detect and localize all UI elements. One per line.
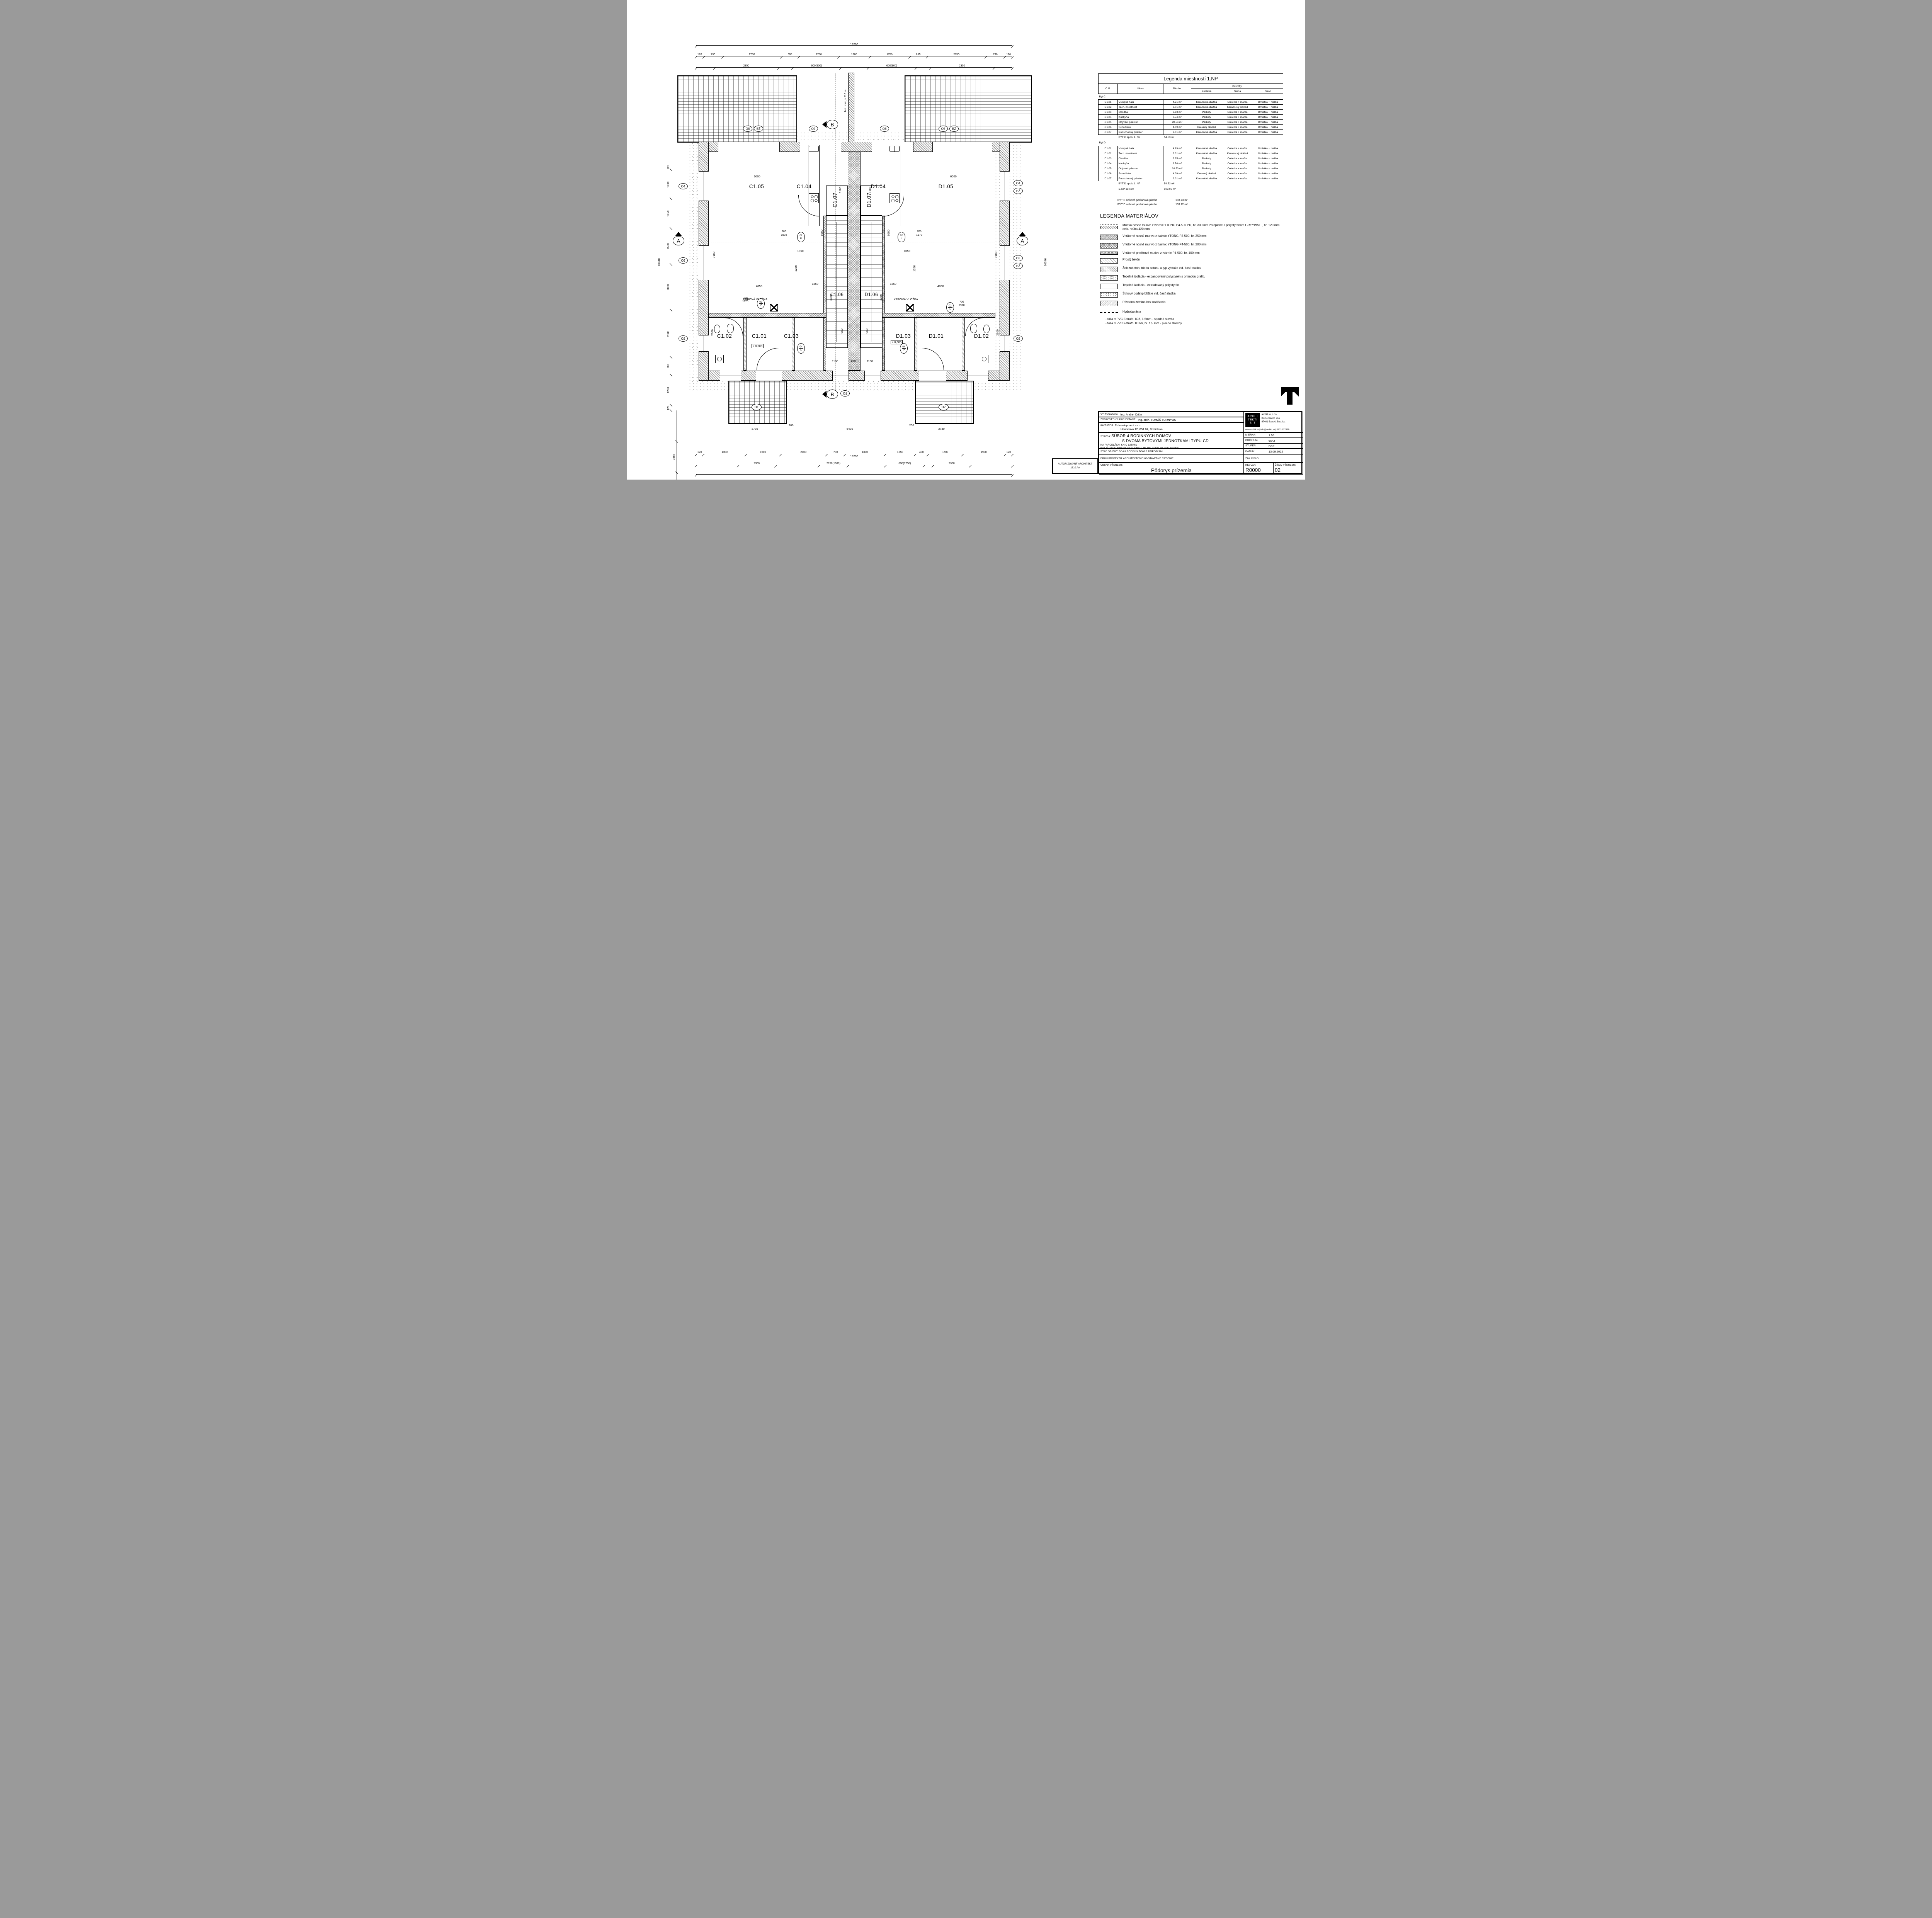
inner-dim: 1350 [812,282,818,286]
drawing-number: 02 [1275,467,1301,474]
dimension-segment: 2350 [930,63,994,67]
window [718,142,780,152]
material-swatch-icon [1100,267,1118,272]
inner-dim: 6000 [754,175,760,178]
material-item: Tepelná izolácia - expandovaný polystyré… [1100,275,1282,281]
dimension-segment: 1750 [870,51,910,56]
window [932,142,992,152]
inner-dim: 1250 [913,265,916,272]
window-marker-o5: O5 [939,126,948,132]
col-header-podlaha: Podlaha [1191,89,1222,94]
room-label-d105: D1.05 [923,184,969,189]
room-label-d101: D1.01 [913,333,959,339]
material-item: Vnútorné nosné murivo z tvárnic YTONG P4… [1100,243,1282,248]
dimension-segment: 700 [666,357,671,375]
window-marker-o4-right: O4 [1014,180,1023,186]
window-marker-o6: O6 [880,126,889,132]
room-legend: Legenda miestností 1.NP Č.M. Názov Ploch… [1098,73,1283,206]
dimension-segment: 1250 [666,199,671,228]
dimension-segment: 120 [666,405,671,410]
hydro-title: Hydroizolácia [1122,310,1141,314]
firm-address: architt.sk, s.r.o.Komenského 24A97401 Ba… [1262,413,1285,424]
inner-dim: 1350 [890,282,896,286]
dimension-segment: 2350 [738,460,776,465]
section-arrow-icon [822,391,827,398]
inner-dim: 1180 [867,359,873,363]
hydro-line: - fólia mPVC Fatrafol 803, 1,5mm - spodn… [1105,317,1282,322]
col-header-povrchy: Povrchy [1191,84,1283,89]
window [1000,171,1010,201]
table-row: D1.04Kuchyňa8.74 m² ParketyOmietka + maľ… [1099,161,1283,166]
sum-value-c: 54.53 m² [1163,135,1191,140]
washer-c-icon [715,355,724,363]
sum-value-d: 54.52 m² [1163,181,1191,187]
marker-ez: EŽ [1014,188,1023,194]
door-marker: 04P [900,343,908,354]
table-row: D1.01Vstupná hala4.19 m² Keramická dlažb… [1099,146,1283,151]
dimension-segment [848,460,885,465]
dimension-segment: 1560 [666,228,671,264]
material-swatch-icon [1100,224,1118,229]
dim-chain-top-secondary: 2350600(900)600(900)2350 [696,63,1012,68]
inner-dim: 3100 [838,187,842,193]
sum-label-d: BYT D spolu 1. NP [1118,181,1163,187]
section-arrow-icon [1019,232,1026,236]
inner-dim: 2300 [996,329,999,336]
terrace-dim: 3730 [938,427,945,431]
col-header-plocha: Plocha [1163,84,1191,94]
dimension-segment: 730 [986,51,1005,56]
staircase-d [861,216,882,348]
partition [743,318,747,371]
window-marker-o3: O3 [1014,255,1023,261]
field-stavba: STAVBA: SÚBOR 4 RODINNÝCH DOMOV S DVOMA … [1099,432,1244,449]
field-investor: INVESTOR: R development s.r.o. Haannova … [1099,422,1244,432]
dimension-segment [916,63,930,67]
col-header-cm: Č.M. [1099,84,1118,94]
field-revizia: REVÍZIA: R0000 [1244,463,1273,475]
inner-dim: 900 [865,328,869,334]
dimension-segment [778,63,793,67]
field-objekt: STAV. OBJEKT: SO-01 RODINNÝ DOM S PRÍPOJ… [1099,449,1244,455]
material-swatch-icon [1100,252,1118,255]
window-marker-o4-left: O4 [679,183,688,189]
dimension-segment: 1280 [838,51,869,56]
material-swatch-icon [1100,292,1118,298]
inner-dim: 7100 [712,252,716,258]
concrete-wall-note: bet. múr, v. 2,0 m [820,97,871,104]
dimension-segment [970,460,1012,465]
drawing-sheet: bet. múr, v. 2,0 m [627,0,1305,480]
table-row: C1.03Chodba3.93 m² ParketyOmietka + maľb… [1099,110,1283,115]
wall-exterior-bottom [699,371,1010,381]
inner-dim: 450 [851,359,856,363]
group-label-byt-d: Byt D [1099,140,1283,146]
entrance-door-c [756,371,782,381]
terrace-top-right [905,75,1032,143]
section-line-a [682,242,1024,242]
material-legend-title: LEGENDA MATERIÁLOV [1100,213,1282,219]
section-marker-b-top: B [822,120,838,129]
dimension-segment: 1230 [666,170,671,199]
fireplace-label-d: KRBOVÁ VLOŽKA [894,298,918,301]
window-marker-o8: O8 [743,126,752,132]
concrete-dividing-wall [848,73,854,143]
inner-dim: 1250 [794,265,798,272]
inner-dim: 7100 [994,252,998,258]
inner-dim: 4850 [937,284,944,288]
dimension-segment: 1750 [799,51,838,56]
door-marker: 02P [757,298,765,309]
level-label: ± 0,000 [752,344,764,348]
terrace-dim: 5430 [847,427,853,431]
dimension-segment: 600(1750) [885,460,924,465]
partition [914,318,917,371]
inner-dim: 3100 [868,187,872,193]
door-marker: 02P [797,232,805,242]
inner-dim: 6000 [950,175,957,178]
field-obsah: OBSAH VÝKRESU: Pôdorys prízemia [1099,463,1244,475]
inner-dim: 900 [840,328,844,334]
dimension-segment: 120 [1005,51,1012,56]
section-marker-a-right: A [1017,232,1028,245]
inner-dim: 6600 [820,230,823,236]
marker-ez: EŽ [949,126,959,132]
terrace-bottom-left [728,381,787,424]
dim-left-total: 10340 [655,258,663,265]
dimension-segment: 2350 [714,63,778,67]
authorized-architect-box: AUTORIZOVANÝ ARCHITEKT 1810 AA [1052,458,1098,474]
dimension-segment: 655 [910,51,927,56]
dimension-segment [840,63,868,67]
dimension-segment: 600(900) [868,63,916,67]
area-line: BYT C celková podlahová plocha103.73 m² [1117,199,1283,202]
table-row: D1.02Tech. miestnosť3.01 m² Keramická dl… [1099,151,1283,156]
window [699,245,709,280]
material-swatch-icon [1100,235,1118,240]
material-swatch-icon [1100,275,1118,281]
marker-ez: EŽ [754,126,763,132]
entrance-door-d [919,371,946,381]
col-header-strop: Strop [1253,89,1283,94]
dimension-segment: 2750 [723,51,781,56]
room-legend-table: Legenda miestností 1.NP Č.M. Názov Ploch… [1098,73,1283,192]
field-mierka: MIERKA:1:50 [1244,432,1303,438]
window-marker-o9: O9 [679,257,688,264]
table-row: C1.06Schodisko4.09 m² Drevený obkladOmie… [1099,125,1283,130]
dim-bottom-total-line [696,472,1012,475]
table-row: C1.05Obývací priestor28.54 m² ParketyOmi… [1099,120,1283,125]
dim-chain-left-secondary: 23501500(850)1500(850) [672,410,677,480]
washer-d-icon [980,355,988,363]
room-label-c105: C1.05 [733,184,780,189]
col-header-stena: Stena [1222,89,1253,94]
sink-c-icon [809,146,819,152]
material-item: Štrkový podsyp bližšie viď. časť statika [1100,292,1282,298]
firm-contact: www.architt.sk | info@architt.sk | 0903 … [1245,429,1302,431]
total-label: 1. NP celkom [1118,187,1163,192]
dimension-segment [924,460,933,465]
section-arrow-icon [822,121,827,128]
material-item: Pôvodná zemina bez rozlíšenia [1100,300,1282,306]
room-label-d104: D1.04 [855,184,901,189]
legend-title: Legenda miestností 1.NP [1099,74,1283,84]
dimension-segment [696,460,738,465]
terrace-dim: 3730 [752,427,758,431]
field-stupen: STUPEŇ:DSP [1244,443,1303,449]
group-label-byt-c: Byt C [1099,94,1283,100]
material-swatch-icon [1100,284,1118,289]
revision-value: R0000 [1245,467,1272,474]
field-zodpovedny: ZODPOVEDNÝ PROJEKTANT:Ing. arch. TOMÁŠ T… [1099,417,1244,422]
sink-d-icon [889,146,900,152]
field-zakcislo: ZÁK.ČÍSLO: [1244,455,1303,463]
material-item: Železobetón, triedu betónu a typ výstuže… [1100,266,1282,272]
hydro-swatch-icon [1100,312,1118,313]
window [720,371,741,381]
dimension-segment [672,473,677,480]
toilet-c-icon [714,325,720,333]
window-marker-o7: O7 [809,126,818,132]
wall-interior-d [882,313,995,318]
table-row: C1.02Tech. miestnosť3.01 m² Keramická dl… [1099,105,1283,110]
terrace-dim: 200 [789,424,794,427]
table-row: D1.05Obývací priestor28.53 m² ParketyOmi… [1099,166,1283,171]
dimension-segment: 2080 [666,310,671,357]
table-row: C1.04Kuchyňa8.74 m² ParketyOmietka + maľ… [1099,115,1283,120]
window [699,171,709,201]
title-block: VYPRACOVAL:Ing. Andrej Oršin ZODPOVEDNÝ … [1098,411,1302,474]
material-item: Vnútorné nosné murivo z tvárnic YTONG P2… [1100,234,1282,240]
sum-label-c: BYT C spolu 1. NP [1118,135,1163,140]
stair-arrow-c [837,222,837,342]
dimension-segment: 2350 [933,460,970,465]
drawing-title: Pôdorys prízemia [1100,467,1242,474]
table-row: C1.01Vstupná hala4.21 m² Keramická dlažb… [1099,100,1283,105]
stair-arrow-d [871,222,871,342]
terrace-bottom-right [915,381,974,424]
door-dim: 7001970 [916,230,922,237]
section-arrow-icon [675,232,682,236]
terrace-top-left [677,75,797,143]
dimension-segment: 2000 [666,265,671,310]
toilet-d-icon [983,325,990,333]
room-label-c103: C1.03 [768,333,815,339]
field-vypracoval: VYPRACOVAL:Ing. Andrej Oršin [1099,412,1244,417]
inner-dim: 4850 [756,284,762,288]
door-dim: 7001970 [742,297,748,304]
table-row: D1.06Schodisko4.09 m² Drevený obkladOmie… [1099,171,1283,176]
field-cislo-vykresu: ČÍSLO VÝKRESU: 02 [1273,463,1303,475]
inner-dim: 3360 [829,294,833,301]
dimension-segment: 2750 [927,51,986,56]
material-swatch-icon [1100,301,1118,306]
hydro-line: - fólia mPVC Fatrafol 807/V, hr. 1,5 mm … [1105,321,1282,326]
dim-top-total-line [696,43,1012,46]
material-item: Tepelná izolácia - extrudovaný polystyré… [1100,283,1282,289]
door-marker: 04L [797,343,805,354]
hydro-item: Hydroizolácia [1100,310,1282,314]
inner-dim: 6600 [887,230,890,236]
room-label-c104: C1.04 [781,184,827,189]
section-marker-b-bottom: B [822,390,838,399]
room-label-d107: D1.07 [866,177,872,223]
dim-chain-left: 120123012501560200020807001280120 [666,165,671,410]
dim-chain-bottom-secondary: 23502150(1600)600(1750)2350 [696,460,1012,465]
partition [962,318,965,371]
dimension-segment: 120 [666,165,671,170]
dimension-segment: 730 [704,51,723,56]
dimension-segment: 600(900) [793,63,840,67]
architect-mark-icon [1279,385,1300,407]
col-header-nazov: Názov [1118,84,1163,94]
partition [792,318,795,371]
area-line: BYT D celková podlahová plocha103.72 m² [1117,203,1283,206]
room-label-d106: D1.06 [848,292,895,297]
table-row: D1.03Chodba3.95 m² ParketyOmietka + maľb… [1099,156,1283,161]
window [864,371,881,381]
dimension-segment: 120 [696,51,704,56]
dim-chain-top: 12073027506551750128017506552750730120 [696,51,1012,56]
dimension-segment: 1280 [666,375,671,405]
inner-dim: 2300 [711,329,714,336]
total-value: 109.05 m² [1163,187,1191,192]
field-pocet: POČET A4:6xA4 [1244,438,1303,443]
field-datum: DÁTUM:13.09.2022 [1244,449,1303,455]
window [967,371,988,381]
window-marker-o2-left: O2 [679,335,688,342]
material-swatch-icon [1100,243,1118,248]
niche-dim: 1050 [797,249,804,253]
window [1000,245,1010,280]
door-marker: 02L [898,232,905,242]
table-row: C1.07Podschodný priestor2.01 m² Keramick… [1099,130,1283,135]
material-item: Prostý betón [1100,258,1282,264]
marker-ez: EŽ [1014,263,1023,269]
firm-logo: ARCHITEKTIT::T [1245,413,1260,427]
dimension-segment: 655 [781,51,799,56]
door-marker: 02L [946,302,954,313]
floor-area-summary: BYT C celková podlahová plocha103.73 m²B… [1117,199,1283,206]
field-druh: DRUH PROJEKTU: ARCHITEKTONICKO-STAVEBNÉ … [1099,455,1244,463]
material-swatch-icon [1100,258,1118,264]
window-marker-o2-right: O2 [1014,335,1023,342]
inner-dim: 1180 [832,359,838,363]
door-dim: 7001970 [781,230,787,237]
wall-interior-c [709,313,826,318]
terrace-dim: 200 [909,424,914,427]
inner-dim: 3360 [879,294,883,301]
dimension-segment [696,63,714,67]
dim-right-total: 10340 [1041,258,1049,265]
dimension-segment [994,63,1012,67]
section-marker-a-left: A [673,232,684,245]
fireplace-c-icon [770,304,778,311]
floor-plan: bet. múr, v. 2,0 m [627,0,1083,480]
door-dim: 7001970 [959,301,965,308]
room-label-c107: C1.07 [832,177,838,223]
niche-dim: 1050 [904,249,910,253]
material-item: Murivo nosné murivo z tvárnic YTONG P4-5… [1100,223,1282,231]
dimension-segment [776,460,819,465]
window-marker-o1: O1 [840,390,850,397]
staircase-c [826,216,848,348]
dimension-segment: 2150(1600) [819,460,848,465]
door-marker-d1: D1 [752,404,762,410]
dimension-segment [672,410,677,441]
material-item: Vnútorné priečkové murivo z tvárnic P4-5… [1100,251,1282,255]
level-label: ± 0,000 [891,340,903,344]
table-row: D1.07Podschodný priestor2.01 m² Keramick… [1099,176,1283,181]
firm-block: ARCHITEKTIT::T architt.sk, s.r.o.Komensk… [1244,412,1303,432]
dim-bottom-total: 13290 [696,452,1012,459]
material-legend: LEGENDA MATERIÁLOV Murivo nosné murivo z… [1100,213,1282,326]
fireplace-d-icon [906,304,914,311]
dimension-segment: 2350 [672,441,677,473]
door-marker-d2: D2 [939,404,949,410]
